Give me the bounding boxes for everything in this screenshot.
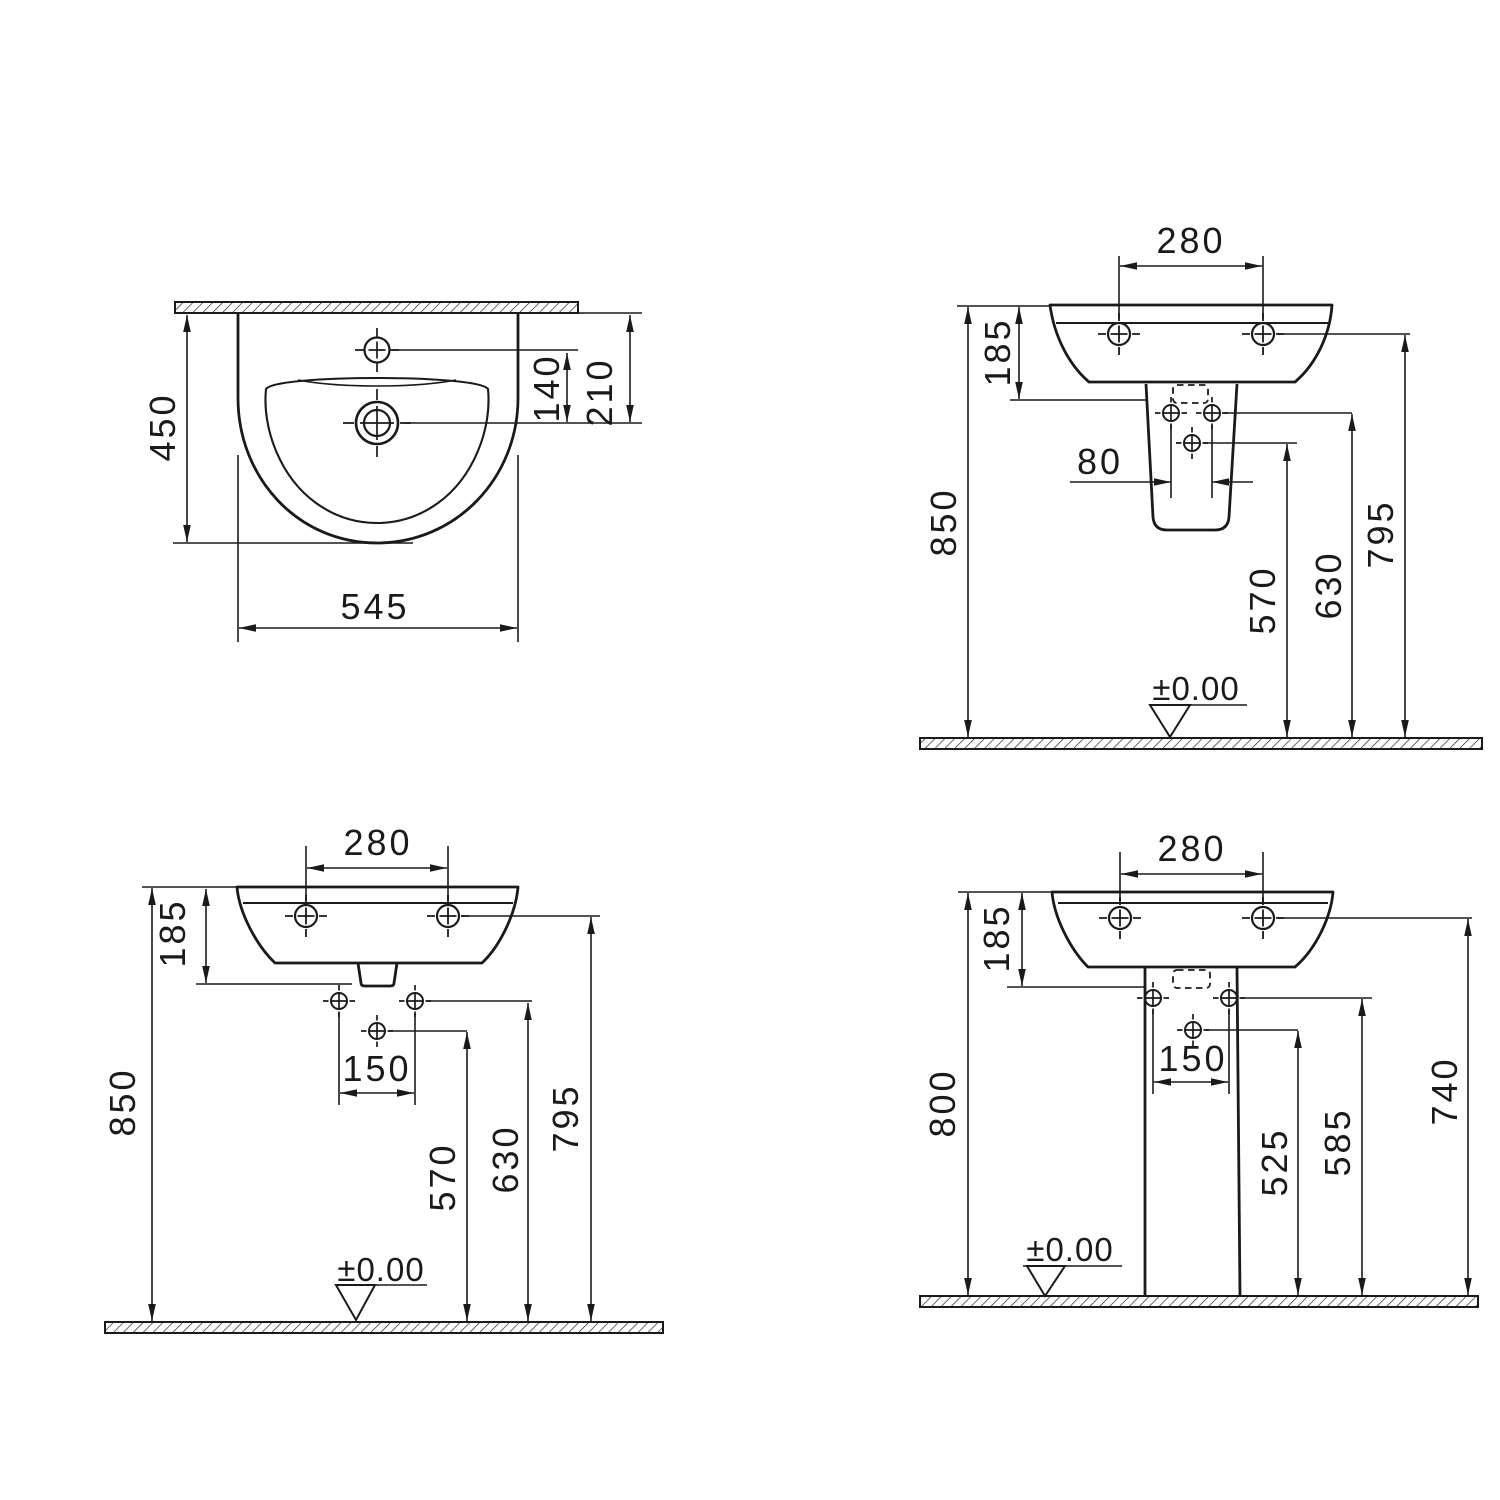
dim-bolt-height: 795: [545, 917, 591, 1321]
view-wall-hung: 280 185 150 850 570 630 795: [102, 822, 663, 1333]
bowl-ledge-line: [298, 380, 456, 386]
dim-width: 545: [238, 455, 518, 642]
view-full-pedestal: 280 185 150 800 525 585 740: [920, 828, 1478, 1307]
dim-label-185: 185: [976, 903, 1017, 972]
tap-hole-icon: [1242, 313, 1284, 355]
dim-inlet-height: 525: [1254, 1031, 1298, 1295]
floor-hatch: [920, 1296, 1478, 1307]
dim-tap-to-drain: 140: [526, 353, 567, 423]
dim-label-800: 800: [922, 1068, 963, 1137]
dim-bolt-height: 795: [1360, 335, 1405, 737]
dim-label-630: 630: [1308, 550, 1349, 619]
dim-fixing-height: 630: [1308, 414, 1352, 737]
dim-label-450: 450: [142, 392, 183, 461]
basin-outer-outline: [238, 313, 518, 543]
dim-label-630: 630: [485, 1124, 526, 1193]
pedestal-right-edge: [1237, 968, 1240, 1296]
dim-label-795: 795: [1360, 499, 1401, 568]
dim-label-570: 570: [1242, 565, 1283, 634]
dim-wall-to-drain: 210: [579, 315, 630, 427]
wall-hatch: [175, 302, 578, 313]
dim-inlet-height: 570: [422, 1032, 467, 1321]
dim-label-525: 525: [1254, 1127, 1295, 1196]
dim-rim-depth: 185: [977, 307, 1146, 400]
dim-label-80: 80: [1077, 441, 1123, 482]
drain-icon: [343, 389, 411, 457]
dim-label-210: 210: [579, 357, 620, 426]
dim-label-850: 850: [102, 1067, 143, 1136]
floor-hatch: [105, 1322, 663, 1333]
floor-hatch: [920, 738, 1482, 749]
dim-rim-height: 800: [922, 893, 968, 1295]
datum-symbol: ±0.00: [1023, 1231, 1122, 1296]
dim-label-140: 140: [526, 353, 567, 422]
drawing-sheet: 450 545 140 210: [0, 0, 1500, 1500]
datum-label: ±0.00: [337, 1251, 424, 1288]
datum-symbol: ±0.00: [1150, 670, 1247, 737]
inlet-hole-icon: [361, 1015, 393, 1047]
dim-label-150: 150: [1158, 1038, 1227, 1079]
fixing-hole-icon: [399, 985, 431, 1017]
dim-label-280: 280: [1157, 828, 1226, 869]
fixing-hole-icon: [1155, 397, 1187, 429]
basin-outline: [237, 887, 518, 963]
dim-label-185: 185: [152, 898, 193, 967]
datum-label: ±0.00: [1152, 670, 1239, 707]
dim-bolt-height: 740: [1424, 919, 1468, 1295]
dim-fixing-height: 630: [485, 1003, 528, 1321]
dim-tap-spacing: 280: [1119, 220, 1263, 318]
dim-label-150: 150: [342, 1048, 411, 1089]
hidden-trap-outline: [1173, 970, 1210, 988]
dim-label-795: 795: [545, 1083, 586, 1152]
view-semi-pedestal: 280 185 80 850 570 630 795: [920, 220, 1482, 749]
basin-outline: [1050, 305, 1332, 382]
hidden-trap-outline: [1173, 385, 1208, 403]
dim-fixing-height: 585: [1317, 999, 1362, 1295]
dim-label-280: 280: [343, 822, 412, 863]
dim-label-850: 850: [923, 487, 964, 556]
datum-label: ±0.00: [1026, 1231, 1113, 1268]
drain-outlet: [358, 963, 397, 986]
tap-hole-icon: [1098, 313, 1140, 355]
dim-fixing-spacing: 80: [1070, 425, 1253, 498]
dim-rim-depth: 185: [142, 887, 352, 984]
dim-label-585: 585: [1317, 1107, 1358, 1176]
fixing-hole-icon: [1213, 982, 1245, 1014]
technical-drawing: 450 545 140 210: [0, 0, 1500, 1500]
tap-hole-icon: [285, 895, 327, 937]
dim-inlet-height: 570: [1242, 444, 1287, 737]
dim-rim-height: 850: [102, 888, 152, 1321]
dim-label-545: 545: [340, 586, 409, 627]
dim-rim-depth: 185: [958, 892, 1145, 987]
datum-symbol: ±0.00: [335, 1251, 427, 1320]
dim-label-280: 280: [1156, 220, 1225, 261]
dim-label-740: 740: [1424, 1056, 1465, 1125]
dim-label-570: 570: [422, 1142, 463, 1211]
view-top: 450 545 140 210: [142, 302, 642, 642]
dim-label-185: 185: [977, 317, 1018, 386]
fixing-hole-icon: [323, 985, 355, 1017]
